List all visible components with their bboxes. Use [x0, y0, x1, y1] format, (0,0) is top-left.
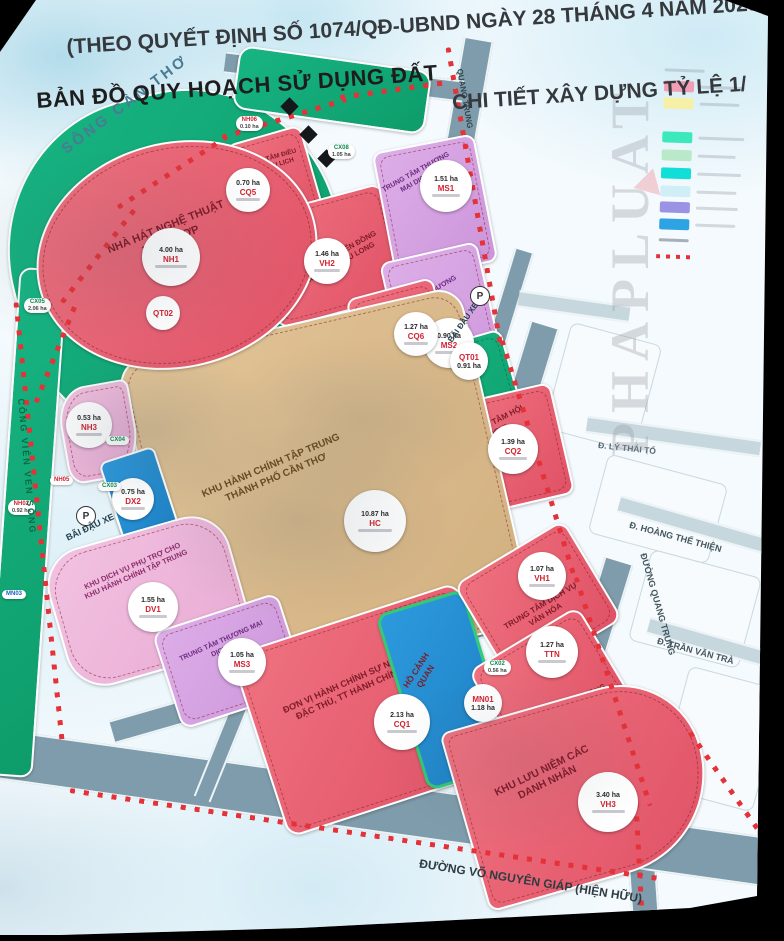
legend-text-faint	[698, 137, 744, 142]
badge-code: MN01	[472, 695, 493, 704]
legend-swatch	[659, 218, 689, 230]
badge-cq5: 0.70 ha CQ5	[226, 168, 270, 212]
label-ly-thai-to: Đ. LÝ THÁI TỔ	[598, 440, 657, 456]
legend-text-faint	[696, 191, 736, 195]
badge-vh1: 1.07 ha VH1	[518, 552, 566, 600]
badge-area: 4.00 ha	[159, 247, 183, 254]
parking-letter: P	[83, 511, 90, 522]
legend-swatch	[662, 131, 692, 143]
badge-code: VH1	[534, 574, 550, 583]
badge-cq1: 2.13 ha CQ1	[374, 694, 430, 750]
tag-code: CX03	[102, 483, 117, 489]
badge-area: 1.55 ha	[141, 597, 165, 604]
badge-code: CQ2	[505, 447, 521, 456]
badge-code: VH3	[600, 800, 616, 809]
badge-area: 1.39 ha	[501, 439, 525, 446]
badge-ttn: 1.27 ha TTN	[526, 626, 578, 678]
badge-hc: 10.87 ha HC	[344, 490, 406, 552]
badge-code: NH3	[81, 423, 97, 432]
badge-dv1: 1.55 ha DV1	[128, 582, 178, 632]
badge-code: VH2	[319, 259, 335, 268]
legend-line-faint	[659, 238, 689, 242]
tag-area: 0.10 ha	[240, 124, 259, 130]
badge-area: 0.75 ha	[121, 489, 145, 496]
legend-text-faint	[695, 224, 735, 228]
tag-code: CX02	[490, 661, 505, 667]
tag-code: NH06	[242, 117, 257, 123]
badge-cq6: 1.27 ha CQ6	[394, 312, 438, 356]
tag-code: CX04	[110, 437, 125, 443]
badge-area: 0.70 ha	[236, 180, 260, 187]
badge-area: 0.91 ha	[457, 363, 481, 370]
decree-header-line1: (THEO QUYẾT ĐỊNH SỐ 1074/QĐ-UBND NGÀY 28…	[66, 0, 760, 60]
tag-cx08: CX08 1.05 ha	[328, 144, 355, 159]
tag-code: CX05	[30, 299, 45, 305]
road-stub-a	[517, 290, 630, 322]
badge-qt01: QT01 0.91 ha	[450, 342, 488, 380]
badge-area: 1.27 ha	[540, 642, 564, 649]
badge-code: CQ5	[240, 188, 256, 197]
legend-text-faint	[698, 155, 736, 159]
badge-qt02: QT02	[146, 296, 180, 330]
tag-cx03: CX03	[98, 482, 121, 491]
badge-area: 2.13 ha	[390, 712, 414, 719]
badge-area: 3.40 ha	[596, 792, 620, 799]
tag-area: 0.56 ha	[488, 668, 507, 674]
badge-area: 1.51 ha	[434, 176, 458, 183]
badge-code: CQ1	[394, 720, 410, 729]
badge-code: DV1	[145, 605, 161, 614]
legend-swatch	[660, 201, 690, 213]
tag-cx05: CX05 2.06 ha	[24, 298, 51, 313]
badge-code: MS1	[438, 184, 454, 193]
tag-area: 2.06 ha	[28, 306, 47, 312]
legend-swatch	[660, 185, 690, 197]
badge-ms3: 1.05 ha MS3	[218, 638, 266, 686]
tag-nh05: NH05	[50, 476, 73, 485]
map-photo: (THEO QUYẾT ĐỊNH SỐ 1074/QĐ-UBND NGÀY 28…	[0, 0, 784, 935]
badge-cq2: 1.39 ha CQ2	[488, 424, 538, 474]
badge-code: DX2	[125, 497, 141, 506]
tag-area: 1.05 ha	[332, 152, 351, 158]
badge-mn01: MN01 1.18 ha	[464, 684, 502, 722]
legend-swatch	[661, 149, 691, 161]
badge-code: QT02	[153, 309, 173, 318]
legend-boundary-sample	[656, 254, 692, 259]
tag-mn03: MN03	[2, 590, 26, 599]
badge-area: 1.05 ha	[230, 652, 254, 659]
legend-title-faint	[665, 68, 705, 72]
legend-text-faint	[696, 207, 738, 211]
badge-nh1: 4.00 ha NH1	[142, 228, 200, 286]
tag-code: NH05	[54, 477, 69, 483]
badge-vh2: 1.46 ha VH2	[304, 238, 350, 284]
badge-code: TTN	[544, 650, 560, 659]
badge-area: 1.07 ha	[530, 566, 554, 573]
badge-area: 1.18 ha	[471, 705, 495, 712]
badge-code: MS3	[234, 660, 250, 669]
tag-cx02: CX02 0.56 ha	[484, 660, 511, 675]
badge-vh3: 3.40 ha VH3	[578, 772, 638, 832]
badge-area: 1.46 ha	[315, 251, 339, 258]
badge-area: 0.53 ha	[77, 415, 101, 422]
tag-cx04: CX04	[106, 436, 129, 445]
legend-text-faint	[699, 103, 739, 107]
legend-text-faint	[697, 173, 741, 178]
badge-code: HC	[369, 519, 381, 528]
tag-nh06: NH06 0.10 ha	[236, 116, 263, 131]
badge-code: CQ6	[408, 332, 424, 341]
badge-code: QT01	[459, 353, 479, 362]
badge-code: NH1	[163, 255, 179, 264]
parking-letter: P	[477, 291, 484, 302]
badge-area: 10.87 ha	[361, 511, 389, 518]
tag-code: MN03	[6, 591, 22, 597]
tag-code: CX08	[334, 145, 349, 151]
badge-ms1: 1.51 ha MS1	[420, 160, 472, 212]
parcel-label: KHU HÀNH CHÍNH TẬP TRUNG THÀNH PHỐ CẦN T…	[190, 427, 356, 516]
badge-area: 1.27 ha	[404, 324, 428, 331]
